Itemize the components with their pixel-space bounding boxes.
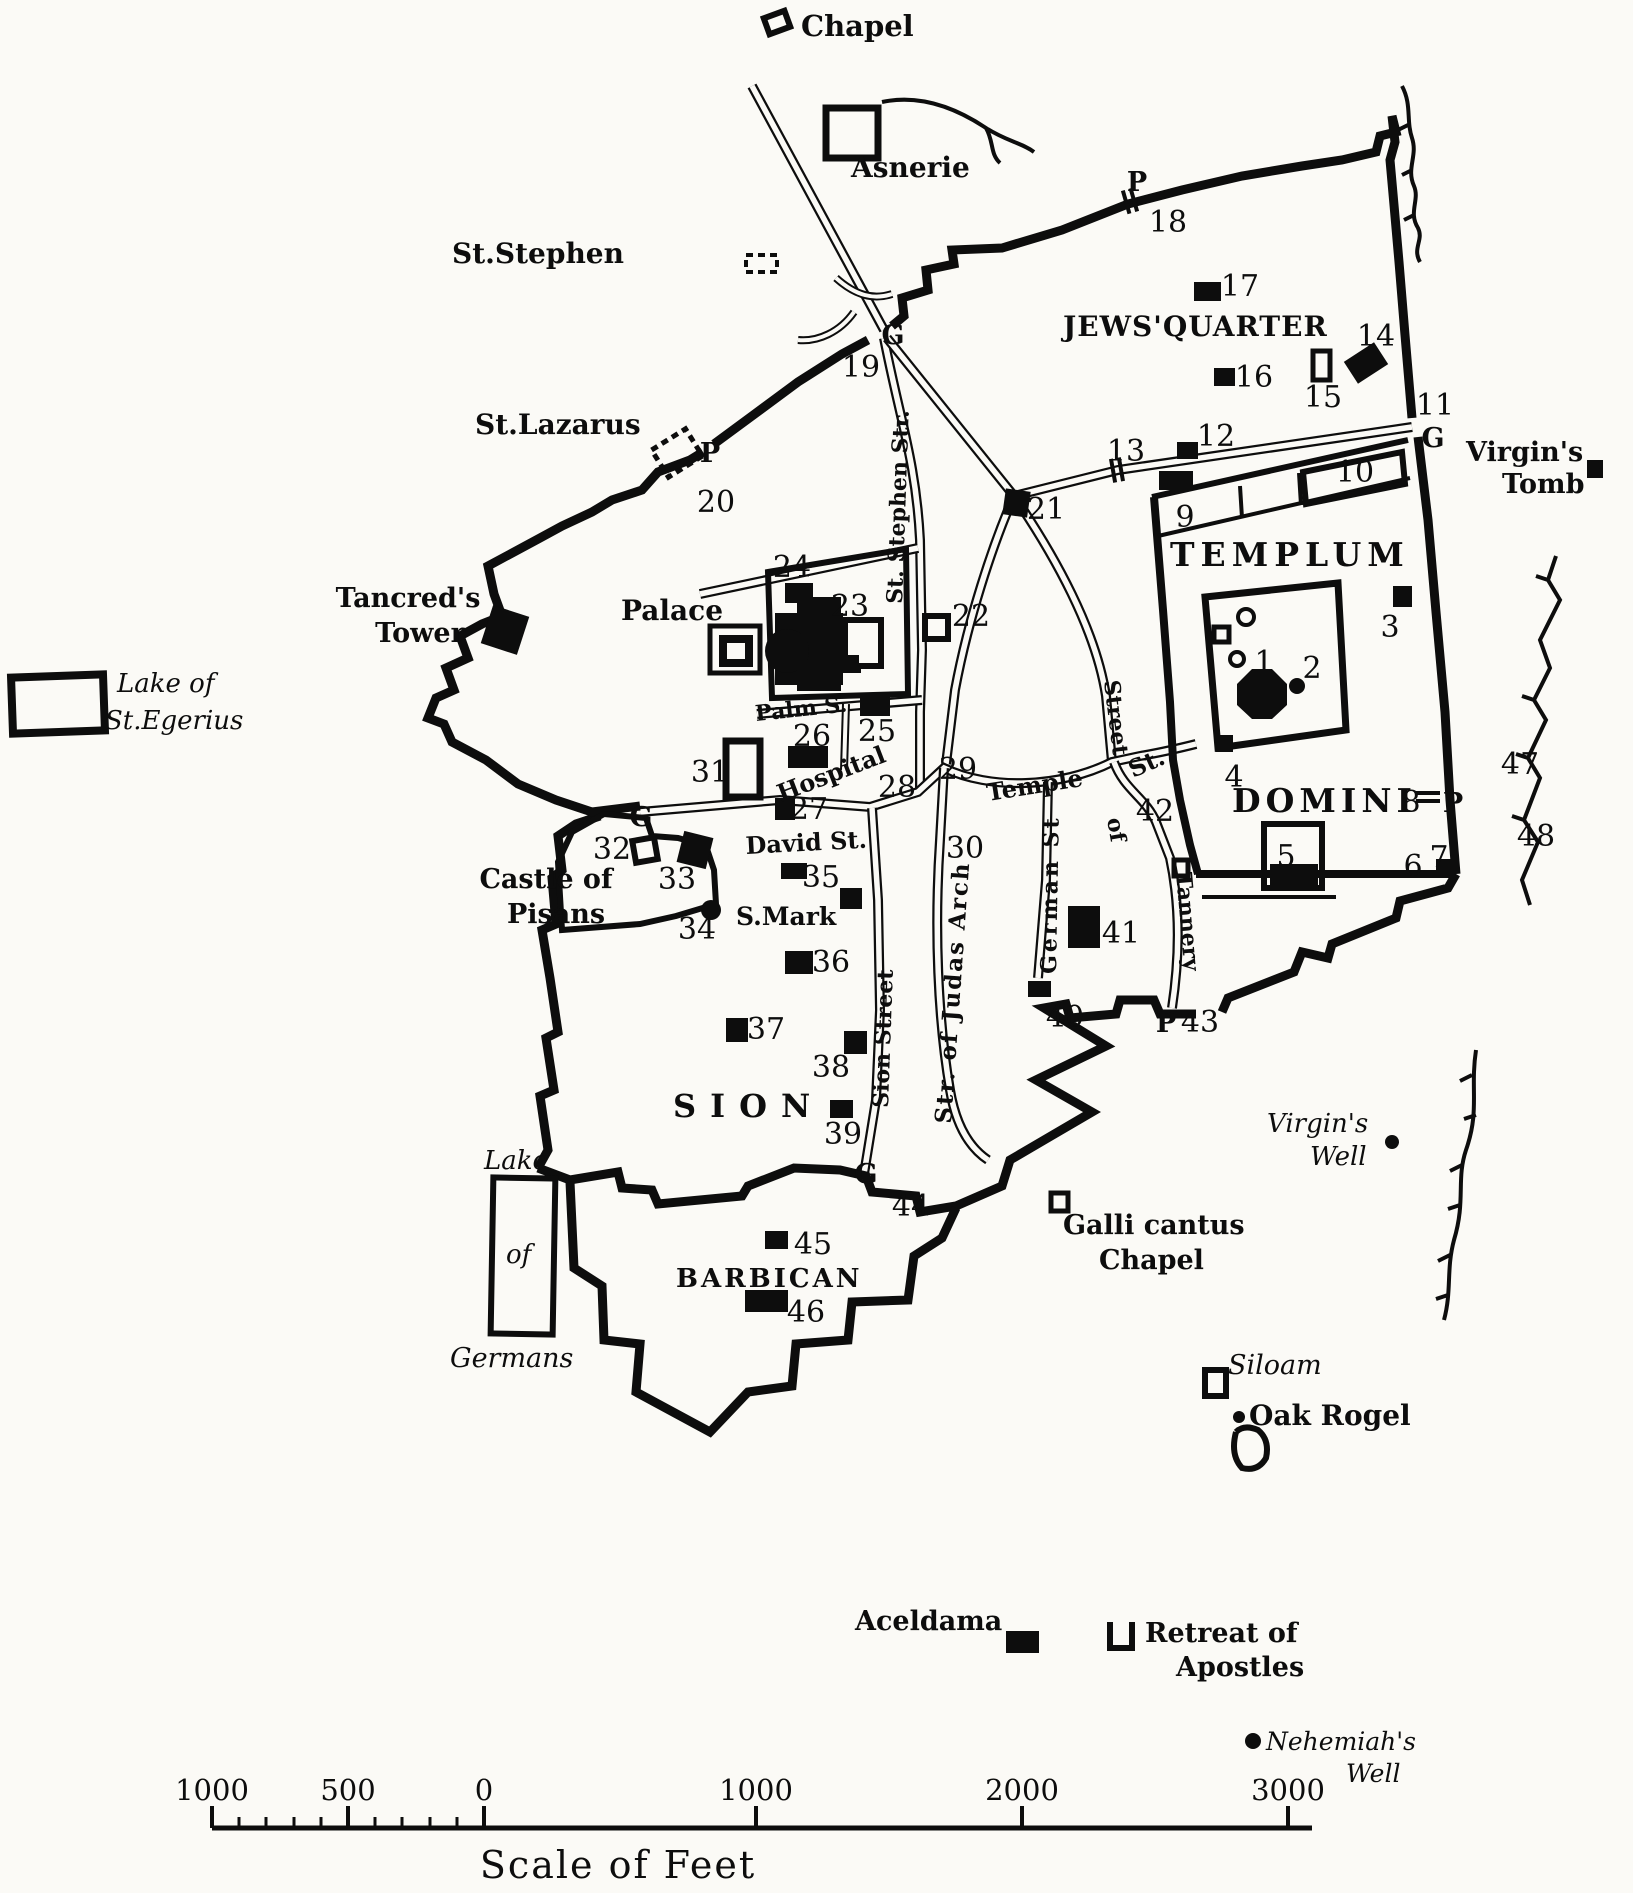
gate-letter-G-0: G (881, 320, 904, 351)
label-david-st: David St. (745, 825, 868, 860)
site-39-block (830, 1100, 853, 1118)
temple-inner-court (1205, 583, 1346, 748)
site-number-43: 43 (1181, 1005, 1219, 1040)
label-tancreds-tower-2: Tower (375, 618, 465, 649)
site-number-1: 1 (1254, 645, 1273, 680)
label-barbican: BARBICAN (676, 1264, 863, 1294)
scale-label-4: 2000 (985, 1773, 1059, 1807)
label-siloam: Siloam (1228, 1350, 1322, 1381)
site-number-35: 35 (802, 860, 840, 895)
site-number-3: 3 (1380, 610, 1399, 645)
siloam-icon (1205, 1370, 1226, 1396)
annotations-layer: ChapelAsnerieSt.StephenSt.LazarusTancred… (11, 9, 1603, 1887)
galli-cantus-icon (1051, 1193, 1068, 1211)
label-sion-street: Sion Street (868, 968, 899, 1108)
site-number-44: 44 (892, 1189, 930, 1224)
site-number-28: 28 (878, 770, 916, 805)
label-aceldama: Aceldama (854, 1606, 1002, 1637)
stream-kidron (1436, 1050, 1476, 1320)
site-number-19: 19 (842, 350, 880, 385)
label-galli-cantus-2: Chapel (1099, 1245, 1204, 1276)
label-lake-germans-1: Lake (483, 1146, 548, 1176)
label-lake-st-egerius-2: St.Egerius (105, 706, 243, 736)
site-number-40: 40 (1046, 1000, 1084, 1035)
site-number-41: 41 (1102, 916, 1140, 951)
label-domini: DOMINI (1232, 781, 1417, 820)
gate-letter-G-2: G (629, 802, 652, 833)
site-number-8: 8 (1401, 785, 1420, 820)
label-chapel: Chapel (801, 9, 914, 43)
map-page: ChapelAsnerieSt.StephenSt.LazarusTancred… (0, 0, 1633, 1893)
street-curve-east-casing (1014, 496, 1112, 762)
site-number-16: 16 (1235, 360, 1273, 395)
site-number-6: 6 (1403, 849, 1422, 884)
gate-letter-P-6: P (1443, 788, 1463, 819)
site-number-29: 29 (939, 752, 977, 787)
scale-label-3: 1000 (719, 1773, 793, 1807)
label-galli-cantus-1: Galli cantus (1063, 1210, 1245, 1241)
label-virgins-well-2: Well (1310, 1142, 1367, 1172)
site-number-15: 15 (1304, 380, 1342, 415)
site-number-12: 12 (1197, 419, 1235, 454)
jerusalem-crusader-map: ChapelAsnerieSt.StephenSt.LazarusTancred… (0, 0, 1633, 1893)
site-22-icon (925, 616, 948, 639)
chapel-icon (764, 11, 790, 34)
label-s-mark: S.Mark (736, 902, 837, 931)
site-15-icon (1313, 351, 1330, 380)
site-number-17: 17 (1221, 269, 1259, 304)
label-st-lazarus: St.Lazarus (475, 408, 641, 441)
site-31-icon (726, 741, 760, 797)
nehemiahs-well-dot (1245, 1733, 1261, 1749)
label-castle-of-pisans-2: Pisans (507, 899, 605, 930)
site-number-32: 32 (593, 832, 631, 867)
temple-square (1214, 627, 1229, 642)
gate-letter-P-4: P (1127, 167, 1147, 198)
temple-band-divider-1 (1240, 486, 1242, 518)
palace-inner-icon (723, 639, 749, 663)
site-number-21: 21 (1027, 492, 1065, 527)
label-temple-st-1: Temple (984, 763, 1084, 807)
label-virgins-tomb-1: Virgin's (1465, 437, 1583, 468)
site-40-block (1028, 981, 1051, 997)
site-12-block (1177, 442, 1198, 459)
streets-layer (640, 86, 1412, 1174)
label-lake-germans-3: Germans (450, 1343, 573, 1374)
label-st-stephen-str: St. Stephen Str. (882, 410, 915, 605)
temple-circle-b (1230, 652, 1244, 666)
label-street-of-tannery-1: Street (1098, 679, 1133, 758)
site-number-30: 30 (946, 831, 984, 866)
site-number-4: 4 (1224, 760, 1243, 795)
site-number-26: 26 (793, 719, 831, 754)
site-number-23: 23 (831, 589, 869, 624)
site-number-20: 20 (697, 485, 735, 520)
label-virgins-well-1: Virgin's (1267, 1109, 1368, 1139)
st-stephen-icon (746, 255, 777, 272)
label-oak-rogel: Oak Rogel (1249, 1399, 1411, 1432)
gate-letter-P-7: P (1156, 1008, 1176, 1039)
retreat-of-apostles-icon (1110, 1622, 1132, 1648)
label-lake-germans-2: of (506, 1240, 536, 1270)
site-24-block (785, 583, 813, 603)
site-number-13: 13 (1107, 434, 1145, 469)
site-number-2: 2 (1302, 651, 1321, 686)
site-25-block (860, 696, 890, 716)
site-37-block (726, 1018, 748, 1042)
tancreds-tower-icon (481, 605, 530, 655)
site-3-block (1393, 586, 1412, 607)
stream-northeast (1398, 86, 1420, 262)
label-asnerie: Asnerie (850, 151, 970, 184)
site-number-31: 31 (691, 755, 729, 790)
site-number-24: 24 (773, 550, 811, 585)
site-16-block (1214, 368, 1235, 386)
site-number-34: 34 (678, 912, 716, 947)
aceldama-block (1006, 1631, 1039, 1653)
site-4-block (1216, 735, 1233, 752)
site-number-48: 48 (1517, 819, 1555, 854)
label-tancreds-tower-1: Tancred's (336, 583, 481, 614)
label-german-st: German St (1036, 815, 1065, 974)
site-number-10: 10 (1336, 455, 1374, 490)
site-number-45: 45 (794, 1227, 832, 1262)
label-virgins-tomb-2: Tomb (1502, 469, 1584, 500)
scale-label-0: 1000 (175, 1773, 249, 1807)
site-32-icon (632, 837, 657, 862)
site-number-7: 7 (1429, 840, 1448, 875)
site-17-block (1194, 282, 1221, 301)
label-castle-of-pisans-1: Castle of (479, 864, 615, 895)
site-number-42: 42 (1136, 794, 1174, 829)
site-number-9: 9 (1175, 500, 1194, 535)
scale-label-5: 3000 (1251, 1773, 1325, 1807)
virgins-well-dot (1385, 1135, 1399, 1149)
site-41-block (1068, 906, 1100, 948)
label-lake-st-egerius-1: Lake of (116, 669, 219, 699)
label-retreat-2: Apostles (1175, 1652, 1304, 1683)
oak-rogel-outline (1234, 1427, 1267, 1468)
site-number-46: 46 (787, 1295, 825, 1330)
scale-caption: Scale of Feet (480, 1843, 756, 1887)
label-jews-quarter: JEWS'QUARTER (1060, 310, 1328, 343)
label-retreat-1: Retreat of (1145, 1618, 1300, 1649)
site-45-block (765, 1231, 788, 1249)
label-st-stephen: St.Stephen (452, 237, 624, 270)
lake-st-egerius-icon (11, 674, 105, 733)
gate-letter-P-5: P (700, 438, 720, 469)
label-nehemiahs-well-2: Well (1346, 1759, 1400, 1788)
site-number-39: 39 (824, 1117, 862, 1152)
gate-letter-G-1: G (1421, 423, 1444, 454)
scale-label-2: 0 (475, 1773, 493, 1807)
label-sion: SION (673, 1087, 824, 1125)
site-number-5: 5 (1276, 839, 1295, 874)
label-templum: TEMPLUM (1170, 535, 1410, 574)
label-nehemiahs-well-1: Nehemiah's (1265, 1727, 1416, 1756)
temple-circle-a (1238, 609, 1254, 625)
label-palace: Palace (621, 594, 723, 627)
site-number-14: 14 (1357, 319, 1395, 354)
site-number-47: 47 (1501, 747, 1539, 782)
site-number-33: 33 (658, 862, 696, 897)
site-number-36: 36 (812, 945, 850, 980)
label-street-of-tannery-2: of (1101, 816, 1131, 846)
site-number-27: 27 (790, 792, 828, 827)
site-number-38: 38 (812, 1050, 850, 1085)
site-number-18: 18 (1149, 205, 1187, 240)
site-number-25: 25 (858, 714, 896, 749)
gate-letter-G-3: G (854, 1159, 877, 1190)
scale-label-1: 500 (320, 1773, 375, 1807)
virgins-tomb-icon (1587, 460, 1603, 478)
site-36-block (785, 951, 813, 974)
site-number-22: 22 (952, 599, 990, 634)
site-number-11: 11 (1416, 388, 1454, 423)
street-curve-east (1014, 496, 1112, 762)
site-9-block (1159, 471, 1193, 490)
s-mark-block (840, 888, 862, 909)
oak-rogel-dot (1233, 1411, 1245, 1423)
site-number-37: 37 (747, 1012, 785, 1047)
